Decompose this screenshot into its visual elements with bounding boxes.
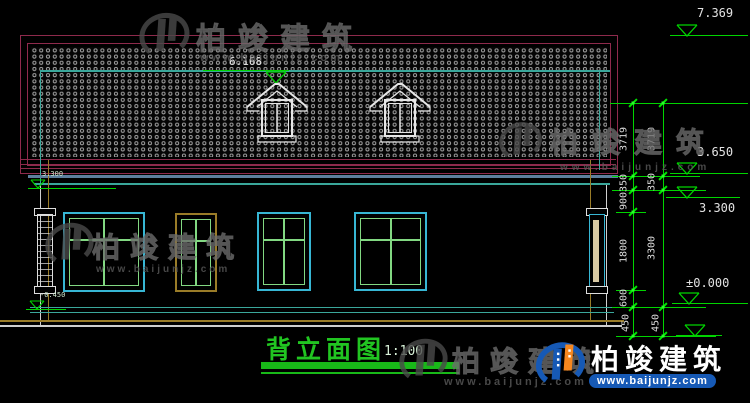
watermark-url: www.baijunjz.com <box>200 52 343 64</box>
brand-logo: 柏竣建筑 www.baijunjz.com <box>535 336 750 396</box>
ridge-level-line <box>40 70 610 72</box>
brand-logo-icon <box>138 8 192 62</box>
eave-teal-line <box>34 183 610 185</box>
dim-grip <box>632 289 635 292</box>
dim-grip <box>632 211 635 214</box>
window-mullion <box>283 219 285 284</box>
dormer-window-left <box>245 78 309 144</box>
eave-left-elevation-label: 3.300 <box>42 170 63 178</box>
watermark: 柏竣建筑 www.baijunjz.com <box>44 218 264 282</box>
watermark: 柏竣建筑 www.baijunjz.com <box>498 118 750 178</box>
dim-label: 450 <box>651 314 662 332</box>
dim-grip <box>632 102 635 105</box>
brand-logo-icon <box>44 218 96 270</box>
ridge-level-drop-left <box>40 70 41 185</box>
dim-grip <box>632 189 635 192</box>
logo-brand: 柏竣建筑 <box>591 338 727 378</box>
brand-logo-icon <box>535 338 587 390</box>
zero-marker-line <box>672 303 748 304</box>
cad-elevation-drawing: 6.168 <box>0 0 750 403</box>
watermark-url: www.baijunjz.com <box>560 162 710 173</box>
zero-elevation-label: ±0.000 <box>686 276 729 290</box>
ground-line-olive <box>0 320 624 322</box>
plinth-line-2 <box>30 312 614 313</box>
roof-top-marker-line <box>670 35 748 36</box>
brand-logo-icon <box>398 334 450 386</box>
watermark: 柏竣建筑 www.baijunjz.com <box>138 8 388 68</box>
pilaster-strip <box>593 220 599 282</box>
window-mullion <box>390 219 392 284</box>
window-transom <box>361 239 420 241</box>
pilaster-cap <box>586 286 608 294</box>
floor2-marker-line <box>666 197 740 198</box>
dim-label: 1800 <box>619 239 630 263</box>
dim-grip <box>662 102 665 105</box>
dormer-window-right <box>368 78 432 144</box>
ground-line <box>0 325 622 327</box>
watermark-brand: 柏竣建筑 <box>92 226 244 266</box>
ground-left-marker-line <box>26 309 66 310</box>
roof-top-elevation-label: 7.369 <box>697 6 733 20</box>
dim-label: 900 <box>619 192 630 210</box>
window-transom <box>264 239 304 241</box>
pilaster-right <box>586 208 610 294</box>
dim-label: 3300 <box>647 236 658 260</box>
dim-grip <box>662 306 665 309</box>
plinth-line-1 <box>30 307 612 308</box>
eave-left-marker-line <box>28 188 116 189</box>
dim-grip <box>662 189 665 192</box>
watermark-url: www.baijunjz.com <box>96 264 230 275</box>
brand-logo-icon <box>498 118 544 164</box>
logo-url: www.baijunjz.com <box>589 374 716 388</box>
floor2-elevation-label: 3.300 <box>699 201 735 215</box>
drawing-title: 背立面图 <box>266 330 386 366</box>
watermark-brand: 柏竣建筑 <box>550 121 718 161</box>
ground-left-elevation-label: -0.450 <box>40 291 65 299</box>
dim-label: 600 <box>619 289 630 307</box>
dim-grip <box>632 306 635 309</box>
dim-label: 450 <box>621 314 632 332</box>
window-4 <box>354 212 427 291</box>
window-3 <box>257 212 311 291</box>
